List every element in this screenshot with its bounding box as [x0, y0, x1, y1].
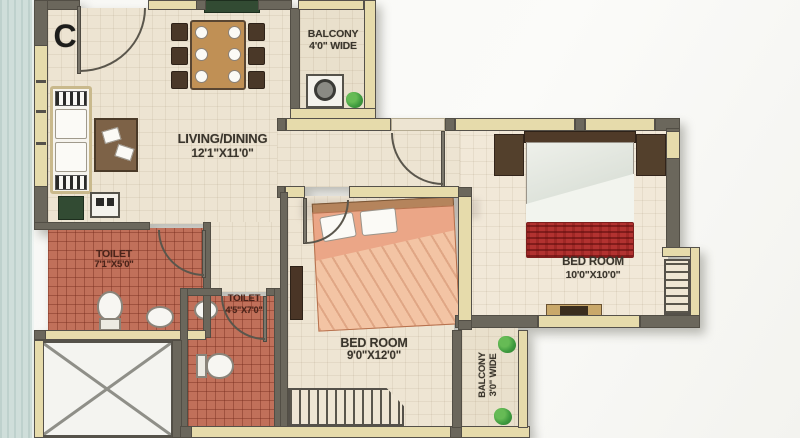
balcony-outer-wall [518, 330, 528, 428]
dining-plate [195, 70, 208, 83]
dining-chair [248, 47, 265, 65]
coffee-table [94, 118, 138, 172]
floorplan-screenshot: { "plan": { "unit_label": "C", "rooms": … [0, 0, 800, 438]
wall-segment [640, 315, 700, 328]
living-dining-label: LIVING/DINING 12'1"X11'0" [150, 132, 295, 161]
sofa-cushion [55, 142, 87, 172]
wall-segment [286, 118, 391, 131]
room-name: BED ROOM [306, 336, 442, 350]
door-threshold [391, 118, 445, 131]
balcony-wall [452, 330, 462, 428]
green-cabinet [58, 196, 84, 220]
dining-plate [195, 48, 208, 61]
wall-segment [180, 426, 530, 438]
window [455, 118, 575, 131]
sofa-cushion [55, 109, 87, 139]
sofa-cushion-striped [55, 175, 87, 190]
wc-icon [206, 353, 234, 379]
nightstand [636, 134, 666, 176]
wall-segment [196, 0, 206, 10]
toilet-1-label: TOILET 7'1"X5'0" [66, 248, 162, 271]
stair-hatch [288, 388, 404, 426]
unit-label: C [48, 18, 82, 55]
bedroom-1-label: BED ROOM 9'0"X12'0" [306, 336, 442, 364]
nightstand [494, 134, 524, 176]
window-mullion [36, 110, 46, 113]
lift-shaft [40, 340, 174, 438]
room-dims: 3'0" WIDE [489, 331, 500, 419]
bed1-pillow [360, 208, 398, 237]
toilet-2-label: TOILET 4'5"X7'0" [200, 294, 288, 315]
dining-chair [171, 23, 188, 41]
wardrobe [290, 266, 303, 320]
wc-icon [97, 291, 123, 321]
wall-segment [34, 340, 44, 438]
room-dims: 7'1"X5'0" [66, 260, 162, 271]
room-dims: 4'5"X7'0" [200, 305, 288, 315]
dining-plate [228, 70, 241, 83]
wall-segment [34, 0, 48, 46]
window-mullion [36, 142, 46, 145]
room-name: LIVING/DINING [150, 132, 295, 147]
floorplan: C LIVING/DINING 12'1"X11'0" BALCONY 4'0"… [0, 0, 800, 438]
dining-plate [195, 26, 208, 39]
room-dims: 4'0" WIDE [296, 40, 370, 52]
sideboard [204, 0, 260, 13]
wall-segment [34, 186, 48, 224]
wall-cap [458, 320, 472, 330]
wall-segment [34, 222, 150, 230]
sofa-cushion-striped [55, 91, 87, 106]
washing-machine-drum-icon [314, 79, 336, 101]
dining-plate [228, 48, 241, 61]
wall-segment [458, 187, 472, 330]
wall-cap [34, 330, 46, 340]
wall-cap [458, 187, 472, 197]
room-dims: 10'0"X10'0" [528, 269, 658, 281]
wall-segment [349, 186, 459, 198]
wall-cap [277, 118, 286, 131]
room-name: TOILET [200, 294, 288, 305]
tv-unit-detail [107, 198, 114, 206]
wall-segment [445, 118, 455, 131]
balcony-wall [290, 8, 300, 112]
dining-chair [171, 71, 188, 89]
washbasin-icon [146, 306, 174, 328]
room-name: BALCONY [296, 28, 370, 40]
tv-unit-detail [96, 198, 104, 206]
dining-chair [248, 23, 265, 41]
wall-segment [575, 118, 585, 131]
balcony-top-label: BALCONY 4'0" WIDE [296, 28, 370, 52]
room-dims: 12'1"X11'0" [150, 147, 295, 161]
window [148, 0, 198, 10]
wall-cap [180, 426, 192, 438]
dining-plate [228, 26, 241, 39]
room-dims: 9'0"X12'0" [306, 350, 442, 363]
lift-cross-icon [43, 343, 171, 435]
plant-icon [498, 336, 516, 353]
room-name: BED ROOM [528, 256, 658, 269]
ledge-hatch [664, 259, 690, 315]
balcony-outer-wall [364, 0, 376, 120]
plant-icon [346, 92, 363, 108]
window-mullion [36, 80, 46, 83]
wall-segment [258, 0, 292, 10]
tv-unit [90, 192, 120, 218]
dining-chair [248, 71, 265, 89]
wall-segment [285, 186, 305, 198]
window [585, 118, 655, 131]
passage-floor [206, 222, 280, 292]
dining-chair [171, 47, 188, 65]
window [666, 131, 680, 159]
bed2-blanket [526, 222, 634, 258]
window [538, 315, 640, 328]
window [298, 0, 364, 10]
wall-segment [172, 340, 182, 438]
balcony-right-label: BALCONY 3'0" WIDE [478, 331, 500, 419]
bedroom-2-label: BED ROOM 10'0"X10'0" [528, 256, 658, 281]
